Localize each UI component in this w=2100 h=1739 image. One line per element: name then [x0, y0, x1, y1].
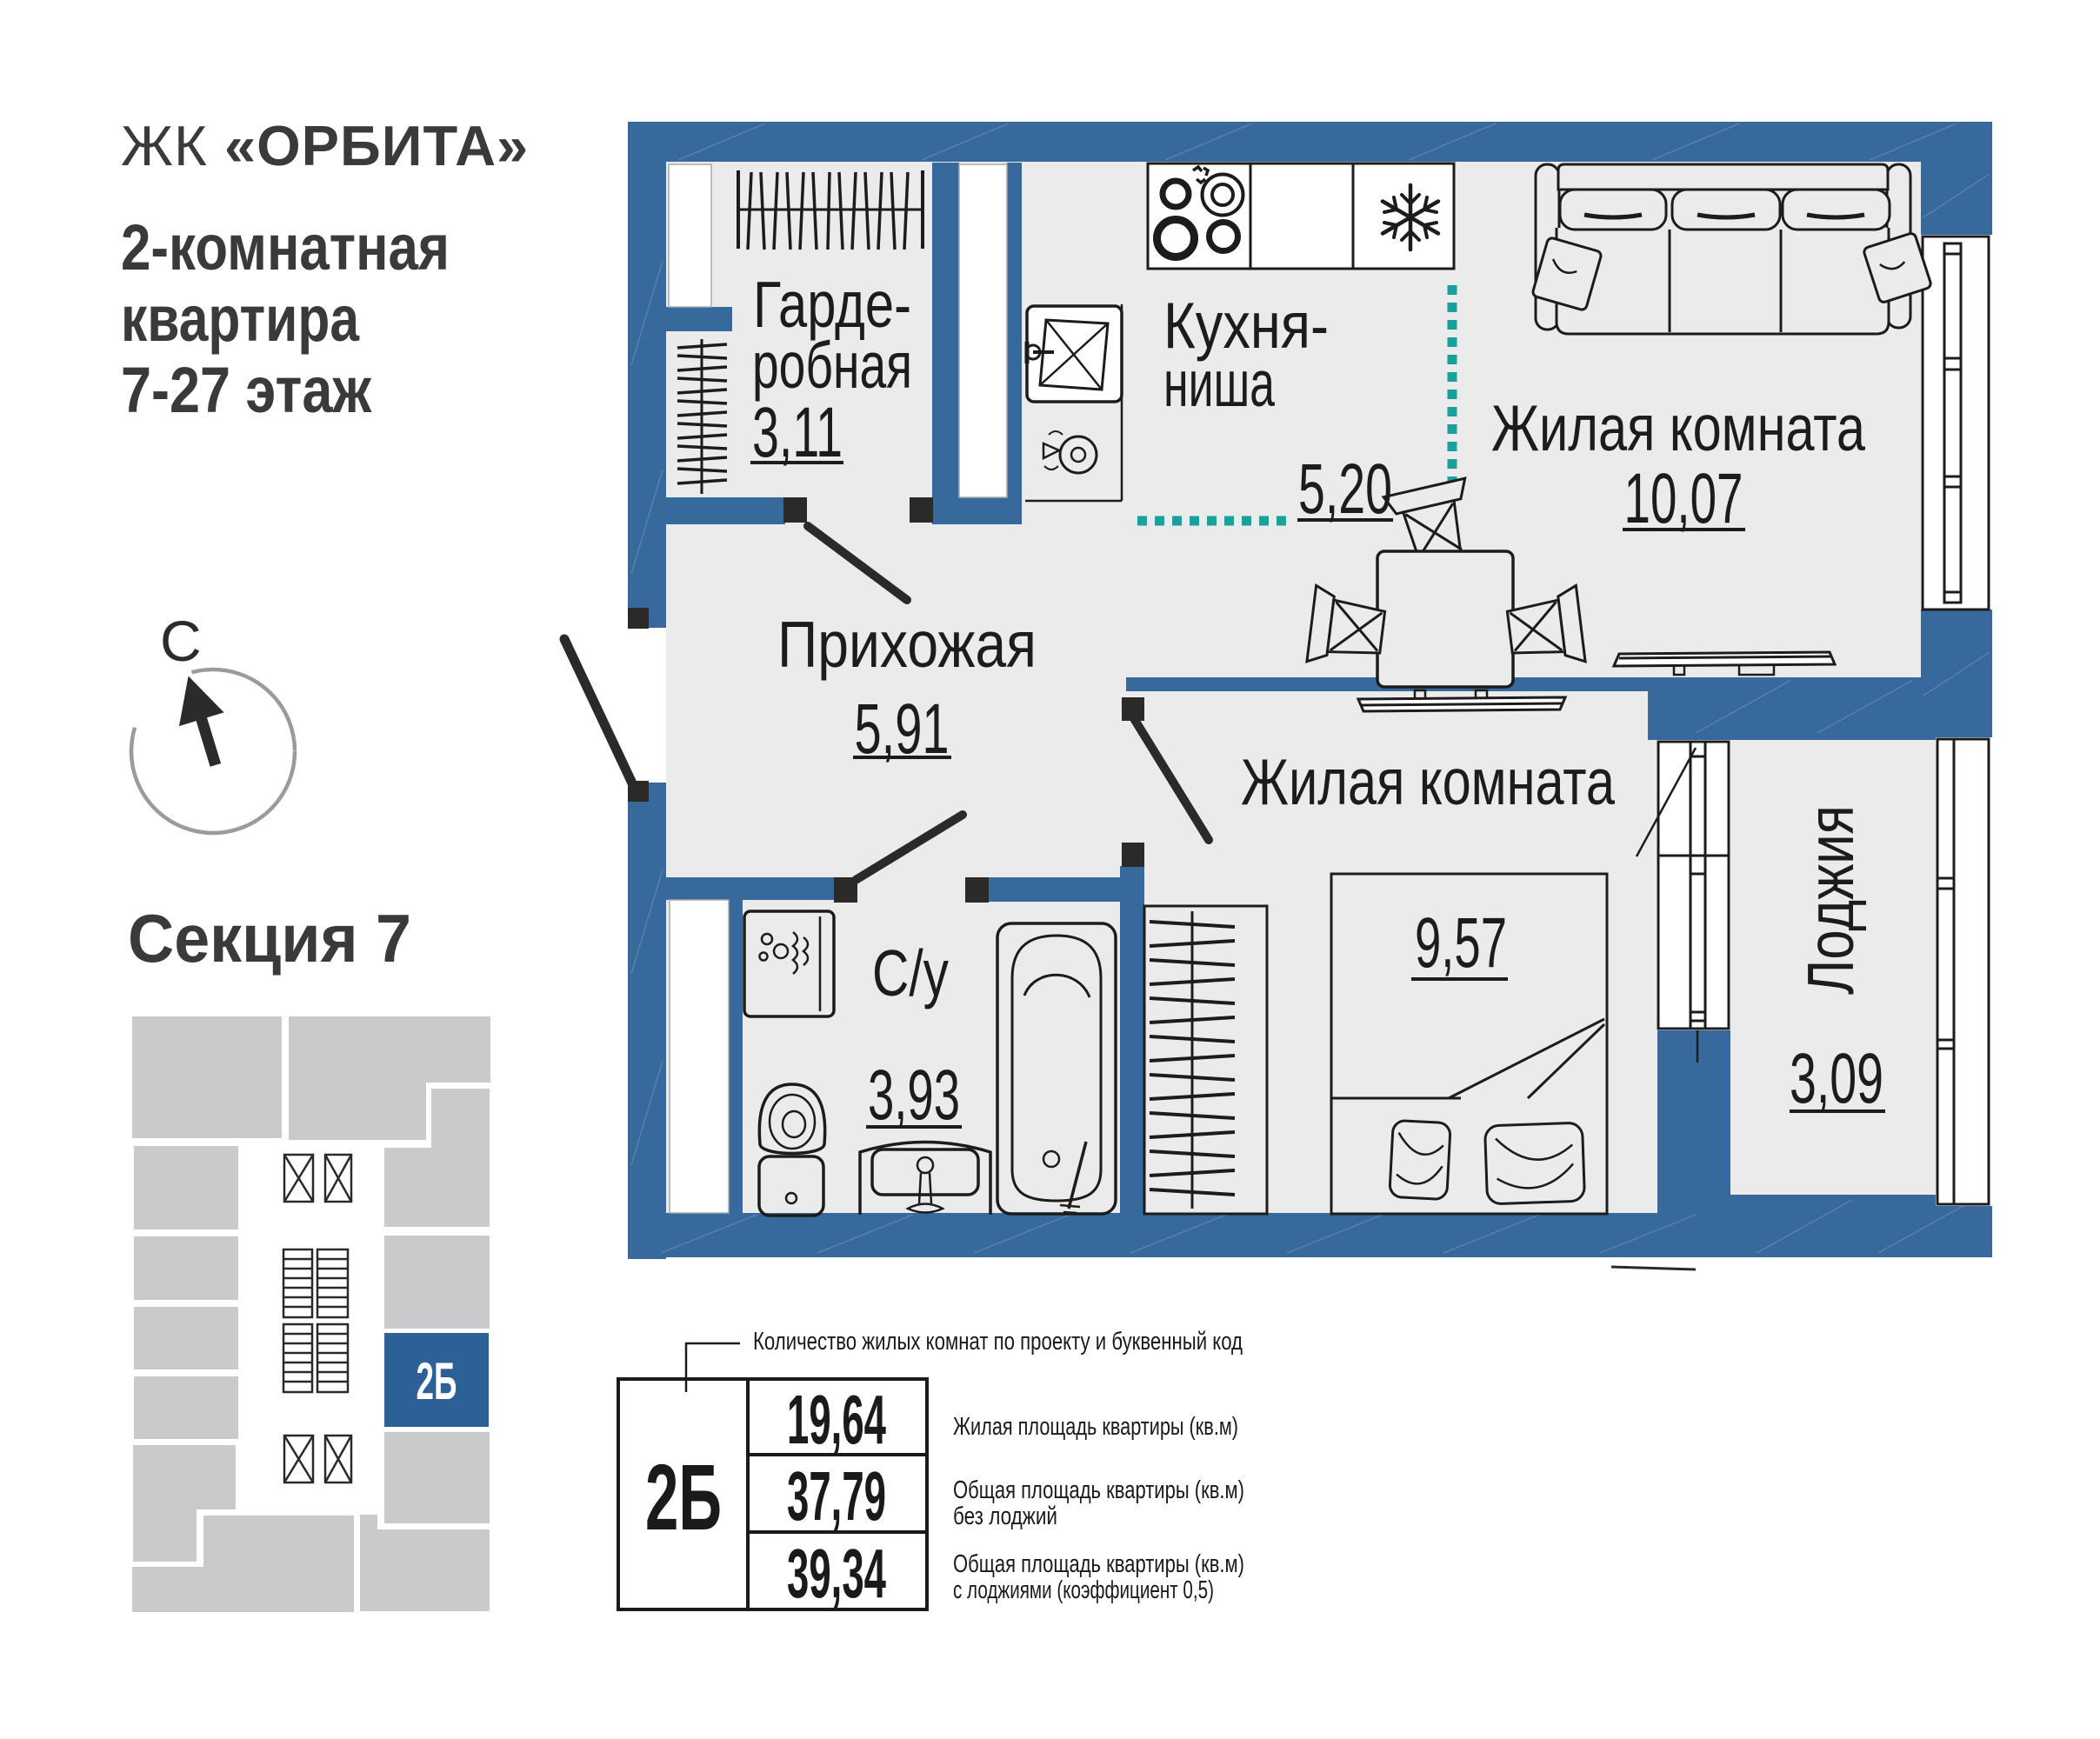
svg-text:Общая площадь квартиры (кв.м): Общая площадь квартиры (кв.м) [953, 1476, 1244, 1504]
svg-text:Прихожая: Прихожая [777, 608, 1037, 681]
svg-text:19,64: 19,64 [787, 1381, 886, 1458]
svg-text:39,34: 39,34 [787, 1535, 886, 1612]
svg-text:С: С [160, 609, 202, 673]
svg-text:2-комнатная: 2-комнатная [121, 211, 450, 283]
svg-text:3,09: 3,09 [1790, 1039, 1883, 1118]
svg-text:без лоджий: без лоджий [953, 1502, 1057, 1530]
svg-text:С/у: С/у [872, 936, 949, 1009]
svg-text:37,79: 37,79 [787, 1457, 886, 1535]
svg-text:Количество жилых комнат по про: Количество жилых комнат по проекту и бук… [753, 1328, 1243, 1356]
svg-text:7-27 этаж: 7-27 этаж [121, 354, 372, 426]
svg-text:3,11: 3,11 [752, 393, 843, 472]
svg-text:ниша: ниша [1163, 347, 1275, 420]
svg-text:Жилая комната: Жилая комната [1491, 391, 1865, 464]
svg-text:10,07: 10,07 [1624, 459, 1743, 538]
svg-text:ЖК «ОРБИТА»: ЖК «ОРБИТА» [121, 114, 529, 177]
svg-text:квартира: квартира [121, 283, 360, 355]
svg-text:с лоджиями (коэффициент 0,5): с лоджиями (коэффициент 0,5) [953, 1576, 1214, 1604]
svg-text:Общая площадь квартиры (кв.м): Общая площадь квартиры (кв.м) [953, 1550, 1244, 1578]
svg-text:3,93: 3,93 [868, 1056, 960, 1135]
svg-text:Жилая площадь квартиры (кв.м): Жилая площадь квартиры (кв.м) [953, 1413, 1238, 1441]
svg-text:5,20: 5,20 [1298, 450, 1392, 529]
svg-text:Жилая комната: Жилая комната [1241, 745, 1615, 818]
svg-text:Секция 7: Секция 7 [128, 900, 411, 976]
svg-text:2Б: 2Б [417, 1352, 457, 1410]
svg-text:Лоджия: Лоджия [1794, 805, 1867, 995]
svg-text:робная: робная [752, 329, 912, 402]
svg-text:9,57: 9,57 [1415, 903, 1507, 983]
svg-text:2Б: 2Б [645, 1444, 722, 1549]
